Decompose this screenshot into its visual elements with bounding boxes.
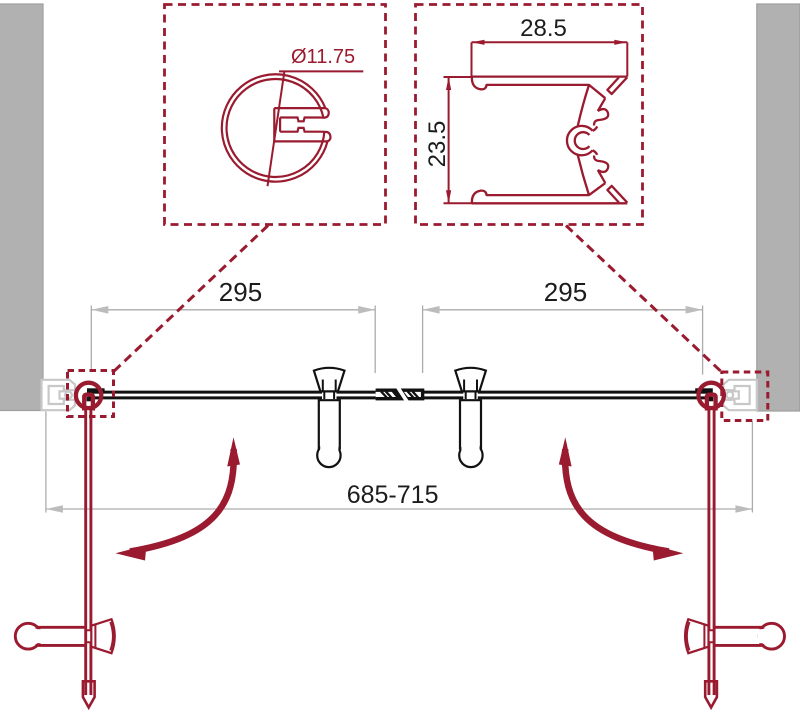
- svg-text:685-715: 685-715: [347, 481, 439, 509]
- svg-text:295: 295: [219, 277, 262, 307]
- svg-text:23.5: 23.5: [424, 121, 451, 168]
- svg-text:295: 295: [544, 277, 587, 307]
- svg-text:Ø11.75: Ø11.75: [291, 46, 355, 68]
- svg-text:28.5: 28.5: [520, 15, 567, 42]
